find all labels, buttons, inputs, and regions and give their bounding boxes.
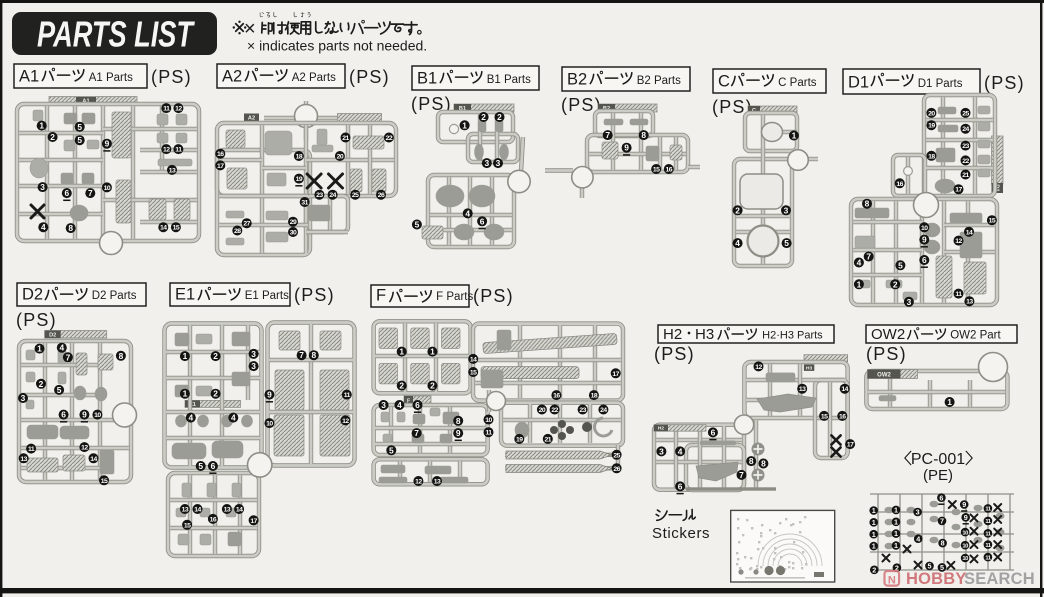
svg-text:3: 3 bbox=[916, 508, 920, 517]
svg-text:15: 15 bbox=[821, 413, 828, 420]
svg-text:8: 8 bbox=[641, 130, 646, 140]
svg-text:1: 1 bbox=[894, 505, 898, 514]
svg-text:5: 5 bbox=[928, 561, 932, 570]
svg-text:19: 19 bbox=[516, 436, 523, 443]
svg-text:14: 14 bbox=[194, 507, 201, 514]
svg-text:12: 12 bbox=[81, 445, 88, 452]
svg-text:6: 6 bbox=[61, 410, 66, 420]
svg-text:3: 3 bbox=[381, 400, 386, 410]
svg-text:D2: D2 bbox=[22, 286, 43, 304]
svg-text:11: 11 bbox=[955, 291, 962, 298]
svg-text:F Parts: F Parts bbox=[436, 291, 473, 303]
svg-text:16: 16 bbox=[210, 516, 217, 523]
svg-text:6: 6 bbox=[711, 427, 716, 437]
svg-text:A2 Parts: A2 Parts bbox=[292, 72, 336, 84]
svg-text:1: 1 bbox=[872, 518, 876, 527]
svg-text:4: 4 bbox=[188, 413, 193, 423]
svg-text:22: 22 bbox=[386, 135, 393, 142]
svg-text:(PS): (PS) bbox=[984, 73, 1025, 93]
svg-text:5: 5 bbox=[77, 135, 82, 145]
svg-text:14: 14 bbox=[90, 456, 97, 463]
svg-text:E1: E1 bbox=[175, 286, 195, 304]
svg-text:8: 8 bbox=[761, 459, 766, 469]
svg-text:11: 11 bbox=[175, 147, 182, 154]
svg-text:1: 1 bbox=[37, 344, 42, 354]
svg-text:4: 4 bbox=[857, 258, 862, 268]
svg-text:17: 17 bbox=[847, 442, 854, 449]
svg-text:N: N bbox=[888, 574, 896, 586]
svg-text:4: 4 bbox=[59, 343, 64, 353]
svg-text:16: 16 bbox=[553, 393, 560, 400]
svg-text:10: 10 bbox=[962, 530, 968, 536]
svg-text:B2: B2 bbox=[567, 71, 587, 89]
svg-text:12: 12 bbox=[175, 106, 182, 113]
svg-text:E1 Parts: E1 Parts bbox=[245, 290, 289, 302]
svg-text:5: 5 bbox=[389, 445, 394, 455]
svg-text:16: 16 bbox=[217, 151, 224, 158]
svg-text:(PS): (PS) bbox=[866, 344, 907, 364]
svg-text:15: 15 bbox=[470, 370, 477, 377]
svg-text:1: 1 bbox=[462, 120, 467, 130]
svg-text:13: 13 bbox=[182, 507, 189, 514]
svg-text:4: 4 bbox=[735, 238, 740, 248]
svg-text:9: 9 bbox=[82, 410, 87, 420]
svg-text:14: 14 bbox=[160, 225, 167, 232]
svg-text:13: 13 bbox=[224, 507, 231, 514]
svg-text:16: 16 bbox=[839, 413, 846, 420]
svg-text:PARTS LIST: PARTS LIST bbox=[37, 14, 195, 55]
svg-text:12: 12 bbox=[955, 238, 962, 245]
svg-text:OW2: OW2 bbox=[871, 326, 905, 343]
svg-text:7: 7 bbox=[414, 428, 419, 438]
svg-text:D2 Parts: D2 Parts bbox=[92, 290, 137, 302]
svg-text:6: 6 bbox=[211, 461, 216, 471]
svg-text:A1: A1 bbox=[19, 68, 39, 86]
svg-text:HOBBY: HOBBY bbox=[906, 570, 967, 588]
svg-text:(PS): (PS) bbox=[294, 285, 335, 305]
svg-text:H2·H3 Parts: H2·H3 Parts bbox=[762, 330, 823, 342]
svg-text:(PS): (PS) bbox=[151, 67, 192, 87]
svg-text:6: 6 bbox=[415, 400, 420, 410]
svg-text:11: 11 bbox=[485, 430, 492, 437]
svg-text:12: 12 bbox=[342, 418, 349, 425]
svg-text:9: 9 bbox=[105, 139, 110, 149]
svg-text:4: 4 bbox=[678, 446, 683, 456]
svg-text:(PE): (PE) bbox=[923, 467, 953, 484]
svg-text:6: 6 bbox=[64, 188, 69, 198]
svg-text:H2: H2 bbox=[658, 426, 664, 432]
svg-text:28: 28 bbox=[234, 228, 241, 235]
svg-text:H3: H3 bbox=[695, 326, 714, 343]
svg-text:7: 7 bbox=[940, 516, 944, 525]
svg-text:14: 14 bbox=[966, 229, 973, 236]
svg-text:15: 15 bbox=[653, 167, 660, 174]
svg-text:26: 26 bbox=[613, 466, 620, 473]
svg-text:8: 8 bbox=[68, 223, 73, 233]
svg-text:14: 14 bbox=[470, 356, 477, 363]
svg-text:13: 13 bbox=[799, 386, 806, 393]
svg-text:D1: D1 bbox=[848, 74, 869, 92]
svg-text:7: 7 bbox=[299, 350, 304, 360]
svg-text:10: 10 bbox=[921, 225, 928, 232]
svg-text:14: 14 bbox=[841, 386, 848, 393]
svg-text:14: 14 bbox=[236, 507, 243, 514]
svg-text:9: 9 bbox=[922, 235, 927, 245]
svg-text:2: 2 bbox=[735, 205, 740, 215]
svg-text:7: 7 bbox=[66, 352, 71, 362]
svg-text:PC-001: PC-001 bbox=[911, 451, 965, 468]
svg-text:11: 11 bbox=[344, 392, 351, 399]
svg-text:13: 13 bbox=[20, 456, 27, 463]
svg-text:12: 12 bbox=[415, 479, 422, 486]
svg-text:6: 6 bbox=[678, 481, 683, 491]
svg-text:10: 10 bbox=[266, 421, 273, 428]
svg-text:13: 13 bbox=[169, 167, 176, 174]
svg-text:1: 1 bbox=[183, 389, 188, 399]
svg-text:5: 5 bbox=[57, 385, 62, 395]
svg-text:1: 1 bbox=[183, 351, 188, 361]
svg-text:1: 1 bbox=[894, 529, 898, 538]
svg-text:30: 30 bbox=[290, 230, 297, 237]
svg-text:3: 3 bbox=[251, 349, 256, 359]
svg-text:15: 15 bbox=[173, 225, 180, 232]
svg-text:7: 7 bbox=[605, 130, 610, 140]
svg-text:2: 2 bbox=[50, 132, 55, 142]
svg-text:19: 19 bbox=[928, 123, 935, 130]
svg-text:1: 1 bbox=[894, 517, 898, 526]
svg-text:26: 26 bbox=[378, 192, 385, 199]
svg-text:13: 13 bbox=[966, 299, 973, 306]
svg-text:A1 Parts: A1 Parts bbox=[89, 72, 133, 84]
svg-text:10: 10 bbox=[104, 185, 111, 192]
svg-text:5: 5 bbox=[198, 461, 203, 471]
svg-text:10: 10 bbox=[962, 556, 968, 562]
svg-text:12: 12 bbox=[163, 147, 170, 154]
svg-text:D2: D2 bbox=[49, 332, 56, 338]
svg-text:Stickers: Stickers bbox=[652, 525, 710, 542]
svg-text:17: 17 bbox=[612, 371, 619, 378]
svg-text:4: 4 bbox=[41, 222, 46, 232]
svg-text:C: C bbox=[718, 73, 730, 91]
svg-text:21: 21 bbox=[342, 135, 349, 142]
svg-text:9: 9 bbox=[624, 143, 629, 153]
svg-text:15: 15 bbox=[989, 218, 996, 225]
svg-text:17: 17 bbox=[250, 518, 257, 525]
svg-text:27: 27 bbox=[243, 221, 250, 228]
svg-text:3: 3 bbox=[251, 361, 256, 371]
svg-text:OW2 Part: OW2 Part bbox=[950, 330, 1001, 342]
svg-text:23: 23 bbox=[962, 143, 969, 150]
svg-text:(PS): (PS) bbox=[654, 344, 695, 364]
svg-text:16: 16 bbox=[666, 167, 673, 174]
svg-text:B2 Parts: B2 Parts bbox=[637, 75, 681, 87]
svg-text:(PS): (PS) bbox=[16, 310, 57, 330]
svg-text:F: F bbox=[376, 287, 386, 305]
svg-text:1: 1 bbox=[792, 131, 797, 141]
svg-text:21: 21 bbox=[962, 172, 969, 179]
svg-text:2: 2 bbox=[481, 112, 486, 122]
svg-text:(PS): (PS) bbox=[349, 67, 390, 87]
svg-text:9: 9 bbox=[267, 390, 272, 400]
svg-text:23: 23 bbox=[579, 407, 586, 414]
svg-text:22: 22 bbox=[962, 158, 969, 165]
svg-text:C Parts: C Parts bbox=[778, 77, 817, 89]
svg-text:20: 20 bbox=[337, 154, 344, 161]
svg-text:3: 3 bbox=[21, 393, 26, 403]
svg-text:4: 4 bbox=[397, 400, 402, 410]
svg-text:20: 20 bbox=[539, 407, 546, 414]
svg-text:8: 8 bbox=[456, 416, 461, 426]
svg-text:13: 13 bbox=[434, 479, 441, 486]
svg-text:8: 8 bbox=[119, 351, 124, 361]
svg-text:8: 8 bbox=[941, 539, 945, 548]
svg-text:24: 24 bbox=[962, 126, 969, 133]
svg-text:A2: A2 bbox=[248, 115, 255, 121]
svg-text:6: 6 bbox=[480, 216, 485, 226]
svg-text:18: 18 bbox=[296, 154, 303, 161]
svg-text:15: 15 bbox=[184, 522, 191, 529]
svg-text:H2: H2 bbox=[663, 326, 682, 343]
svg-text:2: 2 bbox=[497, 112, 502, 122]
svg-text:2: 2 bbox=[893, 279, 898, 289]
svg-text:17: 17 bbox=[217, 163, 224, 170]
svg-text:25: 25 bbox=[352, 192, 359, 199]
svg-text:10: 10 bbox=[94, 412, 101, 419]
svg-text:18: 18 bbox=[591, 393, 598, 400]
svg-text:21: 21 bbox=[545, 436, 552, 443]
svg-text:SEARCH: SEARCH bbox=[964, 570, 1035, 588]
svg-text:3: 3 bbox=[784, 205, 789, 215]
svg-text:8: 8 bbox=[749, 456, 754, 466]
svg-text:A2: A2 bbox=[222, 68, 242, 86]
svg-text:7: 7 bbox=[739, 470, 744, 480]
svg-text:9: 9 bbox=[964, 513, 968, 522]
svg-text:1: 1 bbox=[894, 541, 898, 550]
svg-text:8: 8 bbox=[865, 199, 870, 209]
svg-text:2: 2 bbox=[399, 381, 404, 391]
svg-text:7: 7 bbox=[88, 188, 93, 198]
svg-text:10: 10 bbox=[962, 543, 968, 549]
svg-text:31: 31 bbox=[301, 200, 308, 207]
svg-text:23: 23 bbox=[316, 192, 323, 199]
svg-text:× indicates parts not needed.: × indicates parts not needed. bbox=[247, 38, 427, 54]
svg-text:16: 16 bbox=[896, 181, 903, 188]
svg-text:6: 6 bbox=[939, 493, 943, 502]
svg-text:9: 9 bbox=[456, 428, 461, 438]
svg-text:20: 20 bbox=[928, 110, 935, 117]
svg-text:10: 10 bbox=[485, 417, 492, 424]
svg-text:2: 2 bbox=[872, 565, 876, 574]
svg-text:2: 2 bbox=[213, 389, 218, 399]
svg-text:2: 2 bbox=[213, 351, 218, 361]
svg-text:5: 5 bbox=[415, 220, 420, 230]
svg-text:24: 24 bbox=[600, 407, 607, 414]
svg-text:6: 6 bbox=[922, 255, 927, 265]
svg-text:1: 1 bbox=[399, 347, 404, 357]
svg-text:1: 1 bbox=[947, 397, 952, 407]
svg-text:B1: B1 bbox=[417, 70, 437, 88]
svg-text:17: 17 bbox=[955, 187, 962, 194]
svg-text:8: 8 bbox=[311, 350, 316, 360]
svg-text:4: 4 bbox=[916, 534, 920, 543]
svg-text:12: 12 bbox=[755, 364, 762, 371]
svg-text:3: 3 bbox=[907, 297, 912, 307]
svg-text:4: 4 bbox=[231, 413, 236, 423]
svg-text:22: 22 bbox=[551, 407, 558, 414]
svg-text:4: 4 bbox=[465, 208, 470, 218]
svg-text:3: 3 bbox=[40, 182, 45, 192]
svg-text:H3: H3 bbox=[806, 365, 812, 371]
svg-text:2: 2 bbox=[39, 379, 44, 389]
svg-text:1: 1 bbox=[430, 347, 435, 357]
svg-text:OW2: OW2 bbox=[877, 373, 891, 379]
svg-text:3: 3 bbox=[496, 158, 501, 168]
svg-text:11: 11 bbox=[28, 446, 35, 453]
svg-text:25: 25 bbox=[613, 452, 620, 459]
svg-text:25: 25 bbox=[962, 110, 969, 117]
svg-text:9: 9 bbox=[962, 500, 966, 509]
svg-text:1: 1 bbox=[857, 279, 862, 289]
svg-text:1: 1 bbox=[872, 530, 876, 539]
svg-text:15: 15 bbox=[101, 478, 108, 485]
svg-text:3: 3 bbox=[659, 446, 664, 456]
svg-text:1: 1 bbox=[39, 121, 44, 131]
svg-text:18: 18 bbox=[928, 153, 935, 160]
svg-text:1: 1 bbox=[872, 506, 876, 515]
svg-text:11: 11 bbox=[163, 106, 170, 113]
svg-text:1: 1 bbox=[872, 542, 876, 551]
svg-text:(PS): (PS) bbox=[473, 286, 514, 306]
svg-text:3: 3 bbox=[484, 158, 489, 168]
svg-text:19: 19 bbox=[296, 176, 303, 183]
svg-text:5: 5 bbox=[898, 260, 903, 270]
svg-text:B1 Parts: B1 Parts bbox=[487, 74, 531, 86]
svg-text:2: 2 bbox=[430, 381, 435, 391]
svg-text:D1 Parts: D1 Parts bbox=[918, 78, 963, 90]
svg-text:5: 5 bbox=[77, 122, 82, 132]
svg-text:5: 5 bbox=[784, 238, 789, 248]
svg-text:29: 29 bbox=[290, 219, 297, 226]
svg-text:24: 24 bbox=[329, 192, 336, 199]
svg-text:7: 7 bbox=[866, 252, 871, 262]
